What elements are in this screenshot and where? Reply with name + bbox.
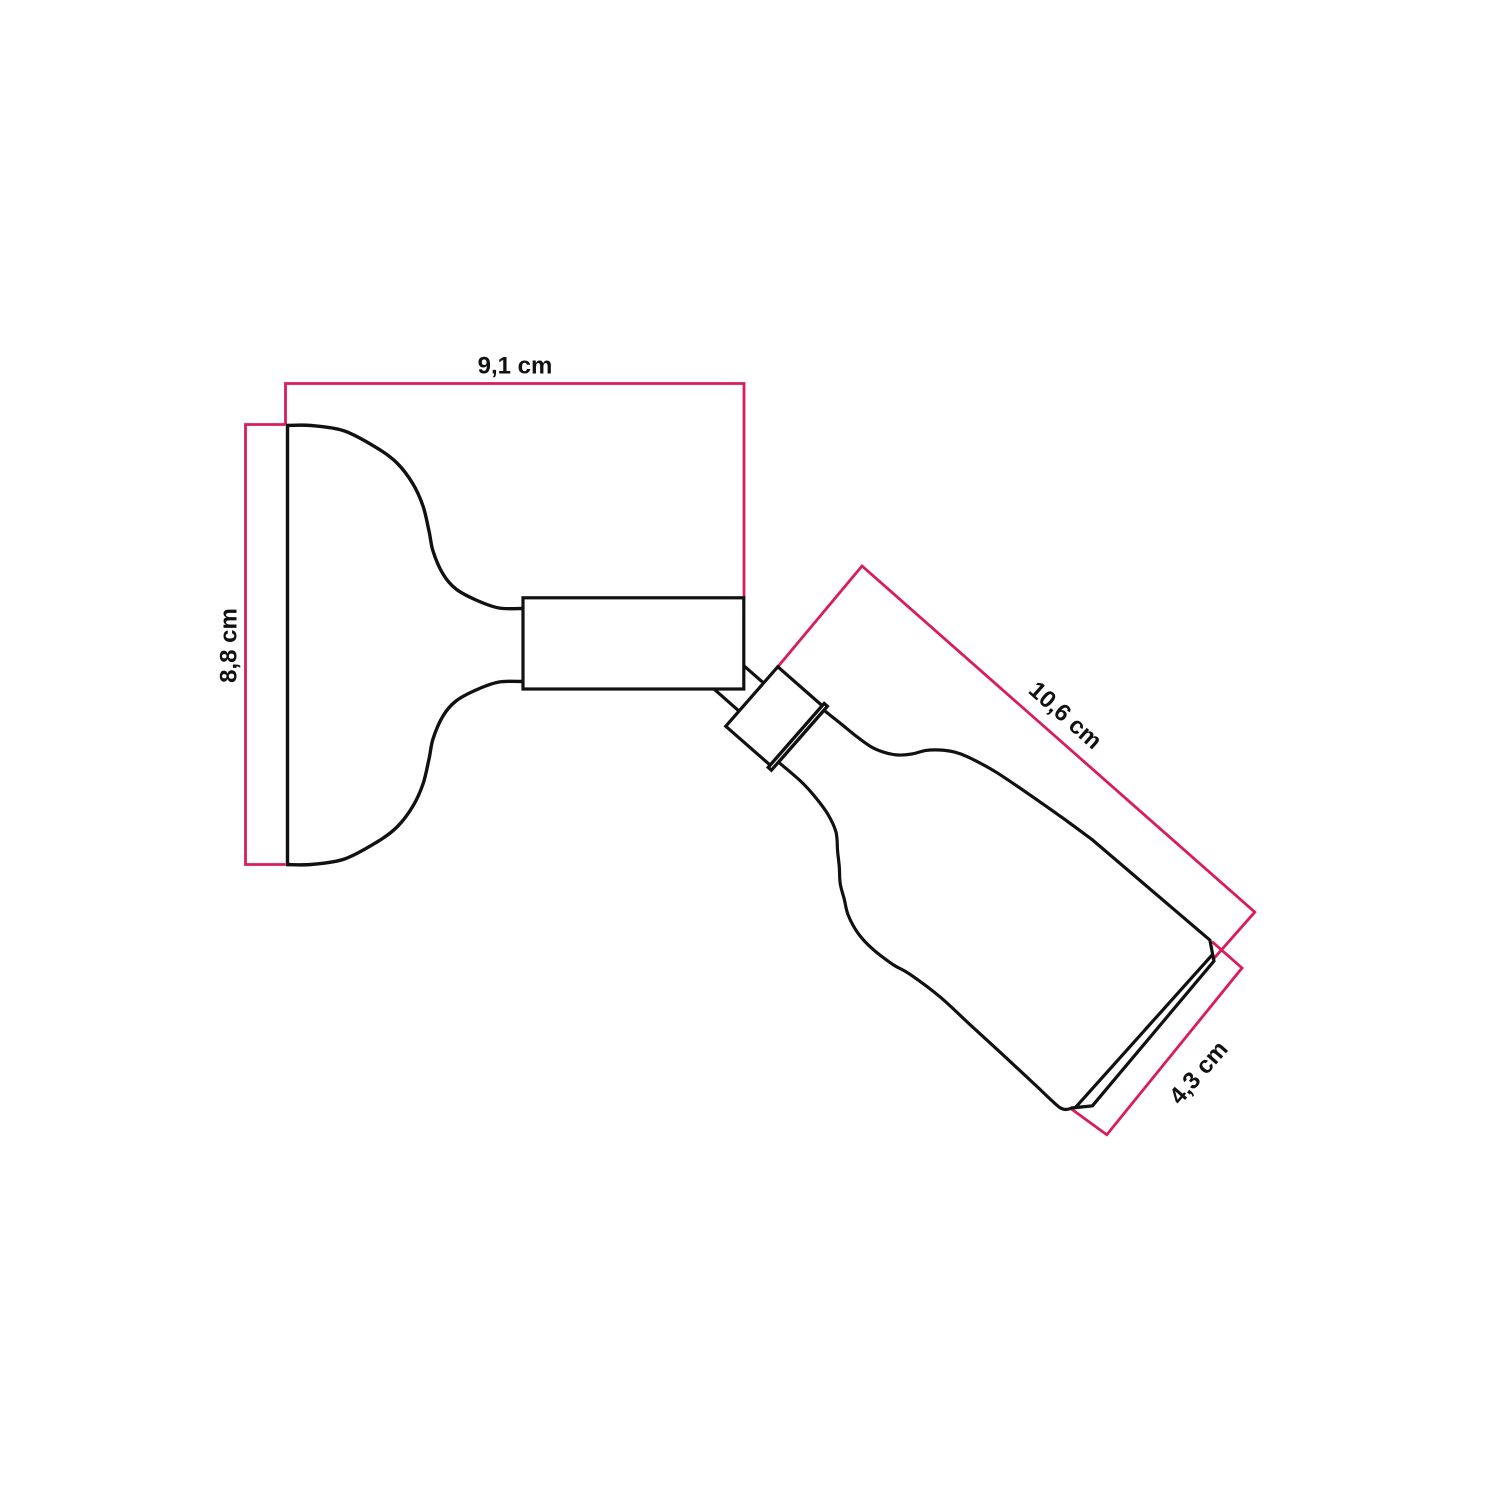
svg-text:9,1 cm: 9,1 cm	[478, 353, 553, 380]
svg-text:8,8 cm: 8,8 cm	[216, 608, 243, 683]
